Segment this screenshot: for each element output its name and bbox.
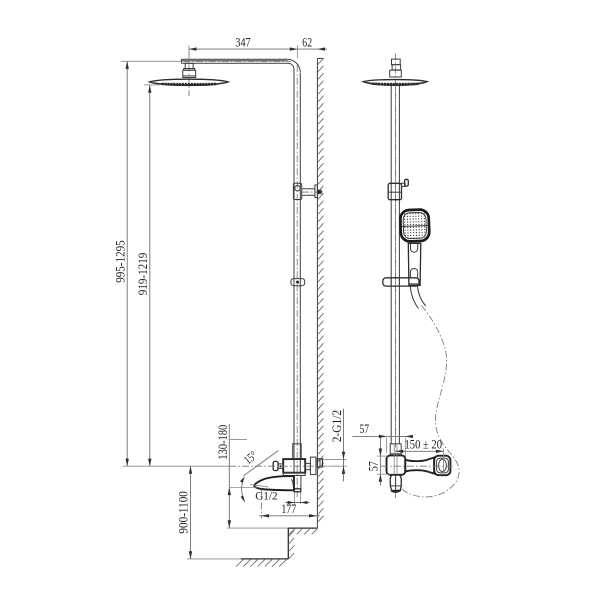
svg-text:995-1295: 995-1295 [113,240,127,283]
svg-text:919-1219: 919-1219 [136,253,150,296]
svg-text:62: 62 [302,35,312,49]
svg-text:177: 177 [281,502,296,516]
svg-text:150 ± 20: 150 ± 20 [405,438,443,452]
svg-text:G1/2: G1/2 [255,489,278,503]
svg-text:57: 57 [367,461,381,471]
svg-text:2-G1/2: 2-G1/2 [330,410,344,442]
svg-text:57: 57 [360,422,370,436]
svg-text:900-1100: 900-1100 [177,491,191,534]
svg-text:130-180: 130-180 [216,425,230,460]
svg-text:347: 347 [235,36,250,50]
